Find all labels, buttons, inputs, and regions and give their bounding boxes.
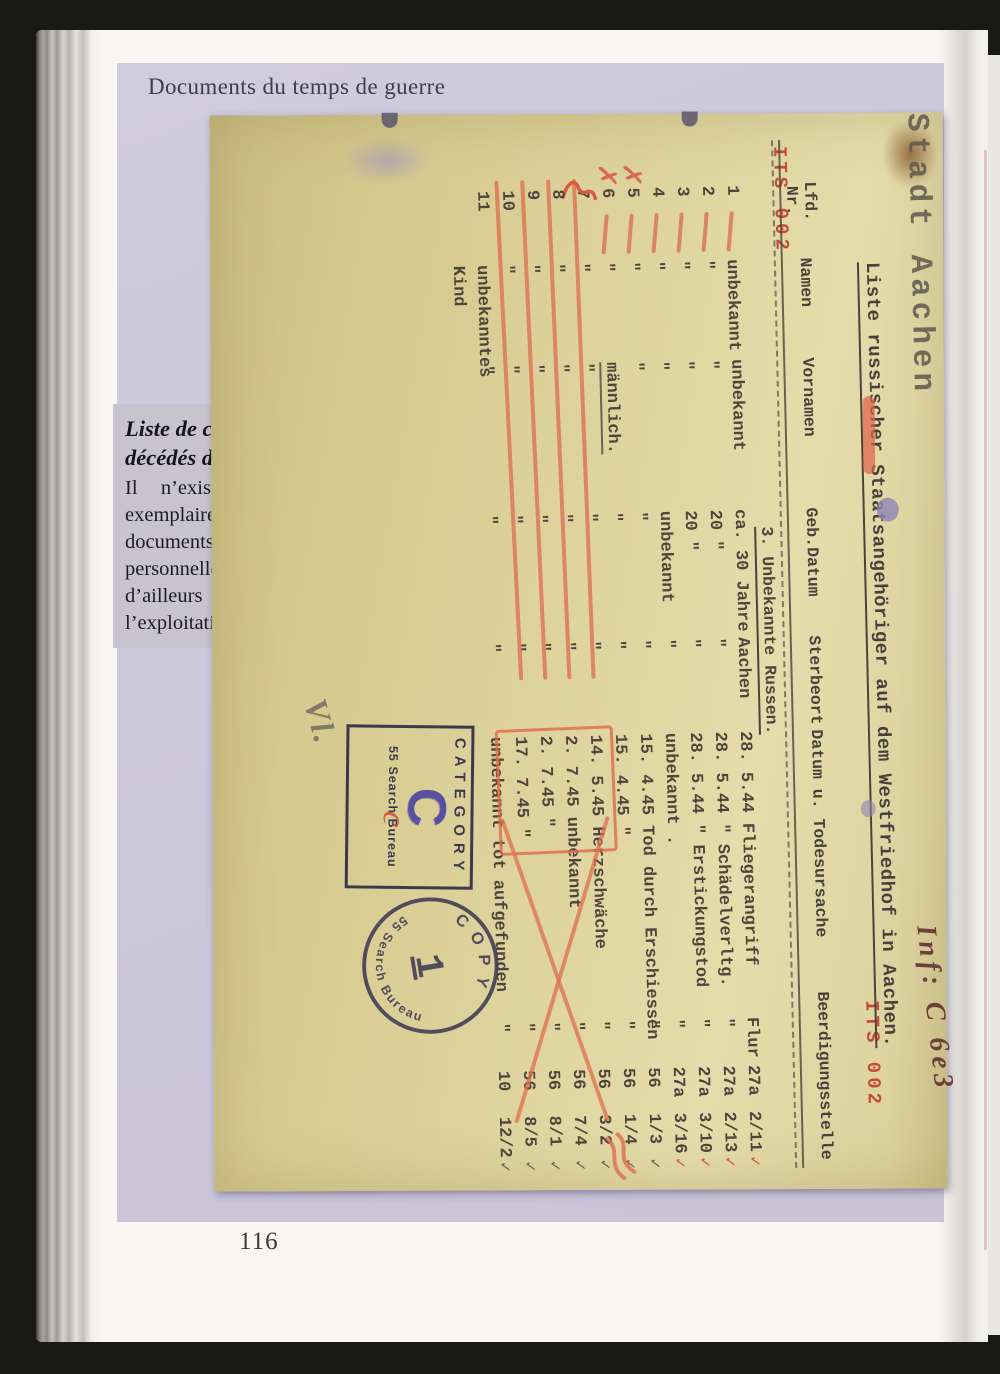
red-tick	[726, 211, 733, 251]
red-scrawl	[601, 1127, 658, 1184]
copy-stamp-number: 1	[404, 951, 451, 981]
running-head: Documents du temps de guerre	[148, 74, 445, 100]
col-header-todesursache: Datum u. Todesursache	[806, 729, 830, 937]
pencil-initials: Vl.	[295, 695, 343, 749]
col-header-sterbeort: Sterbeort	[804, 635, 825, 725]
col-header-lfd: Lfd.	[799, 181, 819, 221]
red-tick	[626, 214, 633, 254]
col-header-vornamen: Vornamen	[798, 357, 819, 437]
page-edge-pink-line	[984, 150, 987, 1250]
col-header-namen: Namen	[795, 257, 815, 307]
document-title: Liste russischer Staatsangehöriger auf d…	[856, 262, 900, 1048]
red-marker-on-title	[862, 396, 874, 474]
document-photo: Stadt Aachen ITS 002 ITS 002 Inf: C 6e3 …	[210, 112, 948, 1191]
red-tick	[676, 212, 683, 252]
handwritten-stadt-aachen: Stadt Aachen	[898, 113, 940, 397]
col-header-beerdigungsstelle: Beerdigungsstelle	[813, 991, 836, 1160]
red-tick	[651, 213, 658, 253]
faint-stamp-smudge	[341, 136, 430, 184]
red-tick	[601, 214, 608, 254]
page-stack-edge	[36, 30, 102, 1342]
category-stamp-letter: C	[401, 728, 451, 887]
col-header-geb-datum: Geb.Datum	[801, 507, 822, 597]
rotated-document: Stadt Aachen ITS 002 ITS 002 Inf: C 6e3 …	[203, 109, 954, 1196]
section-heading: 3. Unbekannte Russen.	[754, 526, 781, 734]
category-stamp-bureau: 55 Search Bureau	[385, 728, 401, 886]
ink-dot	[860, 800, 875, 817]
col-header-nr: Nr.	[782, 186, 802, 216]
ink-dot	[876, 497, 899, 522]
red-tick	[701, 212, 708, 252]
next-page-edge	[986, 55, 1000, 1335]
category-stamp: CATEGORY C 55 Search Bureau c	[344, 724, 474, 889]
copy-stamp: COPY 55 Search Bureau 1	[346, 882, 514, 1050]
page-number: 116	[239, 1228, 279, 1256]
